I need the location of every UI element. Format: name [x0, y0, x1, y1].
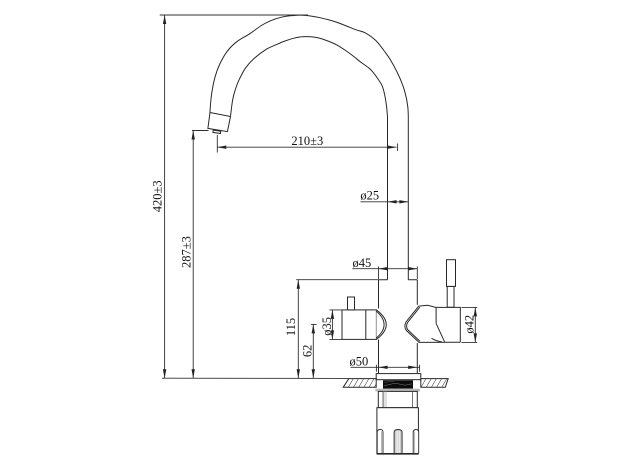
svg-text:ø25: ø25	[360, 189, 379, 203]
svg-text:ø50: ø50	[350, 354, 369, 368]
svg-text:ø42: ø42	[463, 315, 477, 334]
svg-text:ø35: ø35	[320, 317, 334, 336]
svg-text:287±3: 287±3	[180, 236, 194, 268]
svg-text:115: 115	[284, 318, 298, 336]
svg-text:420±3: 420±3	[150, 180, 164, 212]
svg-text:ø45: ø45	[353, 256, 372, 270]
svg-text:62: 62	[301, 345, 315, 358]
svg-text:210±3: 210±3	[291, 134, 323, 148]
